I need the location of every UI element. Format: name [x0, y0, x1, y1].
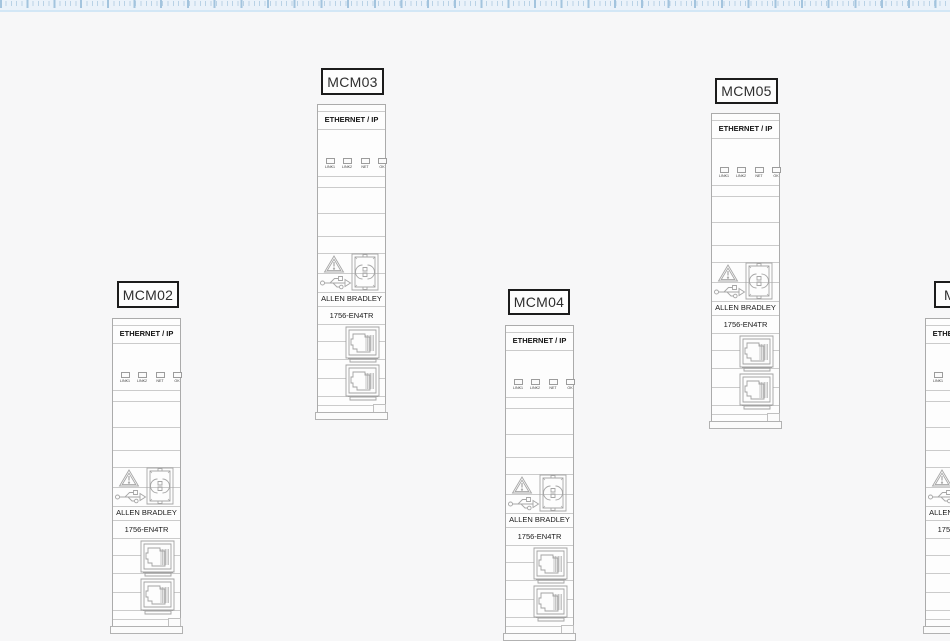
led-indicator-group: LINK1 [511, 379, 525, 391]
divider-line [926, 555, 950, 556]
divider-line [926, 520, 950, 521]
divider-line [926, 506, 950, 507]
model-label: 1756-EN4TR [712, 320, 779, 329]
model-label: 1756-EN4TR [113, 525, 180, 534]
module-faceplate[interactable]: ETHERNET / IP LINK1 LINK2 NET OK [505, 325, 574, 641]
led-label: OK [171, 378, 184, 383]
divider-line [318, 306, 385, 307]
led-indicator [361, 158, 370, 164]
led-label: LINK2 [136, 378, 149, 383]
device-tag-label: MCM02 [123, 287, 174, 303]
ruler-major-ticks [0, 0, 950, 8]
led-label: LINK1 [324, 164, 337, 169]
led-indicator-group: NET [752, 167, 766, 179]
divider-line [712, 245, 779, 246]
led-indicator-group: LINK1 [118, 372, 132, 384]
divider-line [318, 213, 385, 214]
device-tag-label: MCM06 [944, 287, 950, 303]
led-label: LINK1 [119, 378, 132, 383]
device-tag[interactable]: MCM04 [508, 289, 570, 315]
divider-line [926, 592, 950, 593]
usb-icon [114, 488, 148, 504]
led-indicator-group: OK [769, 167, 783, 179]
divider-line [712, 196, 779, 197]
divider-line [926, 538, 950, 539]
module-base [503, 633, 576, 641]
ethernet-ip-label: ETHERNET / IP [506, 333, 573, 349]
module-base [315, 412, 388, 420]
brand-label: ALLEN BRADLEY [506, 515, 573, 524]
ethernet-ip-label: ETHERNET / IP [113, 326, 180, 342]
divider-line [926, 401, 950, 402]
led-indicator [121, 372, 130, 378]
divider-line [506, 350, 573, 351]
led-indicator-group: LINK1 [931, 372, 945, 384]
divider-line [113, 506, 180, 507]
led-label: LINK1 [512, 385, 525, 390]
divider-line [506, 545, 573, 546]
led-indicator-group: OK [170, 372, 184, 384]
led-indicator-group: LINK1 [717, 167, 731, 179]
module-faceplate[interactable]: ETHERNET / IP LINK1 LINK2 NET OK [925, 318, 950, 634]
led-indicator-group: LINK2 [135, 372, 149, 384]
divider-line [506, 513, 573, 514]
warning-triangle-icon [511, 475, 533, 495]
warning-triangle-icon [931, 468, 950, 488]
led-indicator [378, 158, 387, 164]
divider-line [318, 324, 385, 325]
sd-card-icon [539, 474, 567, 512]
ethernet-ip-label: ETHERNET / IP [712, 121, 779, 137]
divider-line [318, 187, 385, 188]
led-indicator-group: OK [375, 158, 389, 170]
device-tag-label: MCM03 [327, 74, 378, 90]
divider-line [926, 619, 950, 620]
led-label: OK [376, 164, 389, 169]
divider-line [712, 315, 779, 316]
module-base [923, 626, 950, 634]
divider-line [712, 222, 779, 223]
led-indicator [531, 379, 540, 385]
model-label: 1756-EN4TR [926, 525, 950, 534]
warning-triangle-icon [717, 263, 739, 283]
led-indicator [566, 379, 575, 385]
brand-label: ALLEN BRADLEY [712, 303, 779, 312]
module-faceplate[interactable]: ETHERNET / IP LINK1 LINK2 NET OK [317, 104, 386, 420]
ethernet-port-icon [137, 578, 179, 616]
device-tag[interactable]: MCM03 [321, 68, 384, 95]
divider-line [506, 527, 573, 528]
led-indicator-group: LINK1 [323, 158, 337, 170]
led-label: OK [770, 173, 783, 178]
divider-line [926, 343, 950, 344]
divider-line [712, 301, 779, 302]
led-label: LINK2 [735, 173, 748, 178]
module-base [709, 421, 782, 429]
divider-line [926, 390, 950, 391]
sd-card-icon [146, 467, 174, 505]
device-tag-label: MCM05 [721, 83, 772, 99]
led-indicator [514, 379, 523, 385]
divider-line [506, 408, 573, 409]
divider-line [318, 292, 385, 293]
led-indicator-group: LINK2 [340, 158, 354, 170]
model-label: 1756-EN4TR [318, 311, 385, 320]
divider-line [926, 450, 950, 451]
led-indicator-group: NET [153, 372, 167, 384]
ethernet-port-icon [137, 540, 179, 578]
ethernet-port-icon [530, 585, 572, 623]
led-indicator [720, 167, 729, 173]
device-tag[interactable]: MCM05 [715, 78, 778, 104]
ethernet-port-icon [342, 326, 384, 364]
divider-line [506, 397, 573, 398]
model-label: 1756-EN4TR [506, 532, 573, 541]
led-indicator-group: LINK2 [734, 167, 748, 179]
usb-icon [507, 495, 541, 511]
divider-line [113, 401, 180, 402]
sd-card-icon [351, 253, 379, 291]
ethernet-ip-label: ETHERNET / IP [318, 112, 385, 128]
led-label: NET [753, 173, 766, 178]
ethernet-port-icon [736, 373, 778, 411]
led-indicator [173, 372, 182, 378]
led-label: NET [359, 164, 372, 169]
device-tag[interactable]: MCM02 [117, 281, 179, 308]
led-indicator [326, 158, 335, 164]
module-base [110, 626, 183, 634]
device-tag-label: MCM04 [514, 294, 565, 310]
divider-line [113, 538, 180, 539]
divider-line [113, 520, 180, 521]
brand-label: ALLEN BRADLEY [318, 294, 385, 303]
divider-line [506, 457, 573, 458]
warning-triangle-icon [118, 468, 140, 488]
module-faceplate[interactable]: ETHERNET / IP LINK1 LINK2 NET OK [112, 318, 181, 634]
sd-card-icon [745, 262, 773, 300]
ethernet-port-icon [342, 364, 384, 402]
divider-line [712, 333, 779, 334]
led-indicator [156, 372, 165, 378]
led-label: NET [154, 378, 167, 383]
divider-line [113, 390, 180, 391]
usb-icon [319, 274, 353, 290]
divider-line [712, 185, 779, 186]
led-indicator [934, 372, 943, 378]
divider-line [113, 343, 180, 344]
usb-icon [713, 283, 747, 299]
device-tag[interactable]: MCM06 [934, 281, 950, 308]
ethernet-port-icon [736, 335, 778, 373]
led-indicator-group: NET [358, 158, 372, 170]
led-indicator [138, 372, 147, 378]
horizontal-ruler[interactable] [0, 0, 950, 12]
divider-line [926, 573, 950, 574]
led-indicator [755, 167, 764, 173]
divider-line [113, 427, 180, 428]
led-label: LINK2 [529, 385, 542, 390]
divider-line [926, 610, 950, 611]
led-indicator [737, 167, 746, 173]
warning-triangle-icon [323, 254, 345, 274]
led-indicator-group: LINK2 [528, 379, 542, 391]
divider-line [318, 129, 385, 130]
led-label: NET [547, 385, 560, 390]
led-indicator-group: NET [546, 379, 560, 391]
divider-line [318, 236, 385, 237]
led-label: LINK1 [932, 378, 945, 383]
led-indicator [549, 379, 558, 385]
divider-line [926, 427, 950, 428]
led-indicator [772, 167, 781, 173]
divider-line [506, 434, 573, 435]
led-indicator [343, 158, 352, 164]
led-label: LINK1 [718, 173, 731, 178]
module-faceplate[interactable]: ETHERNET / IP LINK1 LINK2 NET OK [711, 113, 780, 429]
ethernet-ip-label: ETHERNET / IP [926, 326, 950, 342]
divider-line [712, 138, 779, 139]
divider-line [318, 176, 385, 177]
ethernet-port-icon [530, 547, 572, 585]
led-label: LINK2 [341, 164, 354, 169]
brand-label: ALLEN BRADLEY [926, 508, 950, 517]
brand-label: ALLEN BRADLEY [113, 508, 180, 517]
led-label: OK [564, 385, 577, 390]
led-indicator-group: OK [563, 379, 577, 391]
usb-icon [927, 488, 950, 504]
divider-line [113, 450, 180, 451]
